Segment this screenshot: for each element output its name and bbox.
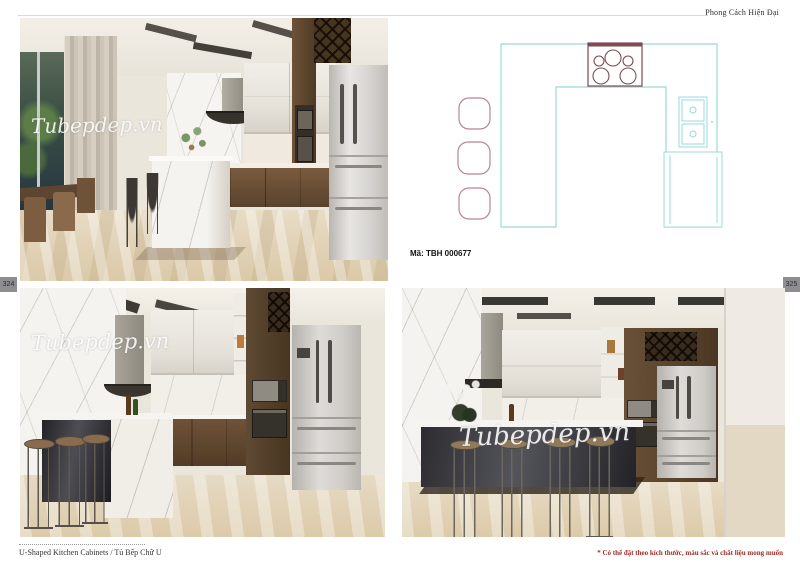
wine-rack-lattice xyxy=(268,292,290,332)
plan-oven-stack xyxy=(679,97,713,147)
bar-stool xyxy=(123,178,141,246)
fridge-drawer-handle xyxy=(297,462,355,465)
catalog-page: Phong Cách Hiện Đại xyxy=(0,0,800,565)
flower-arrangement xyxy=(175,123,212,160)
fridge-seam xyxy=(329,155,388,157)
kitchen-photo-bottom-left: Tubepdep.vn xyxy=(20,288,385,537)
marble-island xyxy=(152,161,229,248)
footer-caption: U-Shaped Kitchen Cabinets / Tủ Bếp Chữ U xyxy=(19,548,162,557)
plan-refrigerator xyxy=(664,152,722,227)
upper-cabinets xyxy=(244,63,336,134)
fridge-drawer-handle xyxy=(662,462,710,465)
upper-cabinets xyxy=(502,330,602,397)
footer-rule xyxy=(19,544,145,545)
orchid-arrangement xyxy=(433,375,494,422)
ceiling-light-strip xyxy=(517,313,571,319)
wine-bottle xyxy=(509,404,514,421)
page-number-left: 324 xyxy=(0,277,17,292)
backsplash xyxy=(151,375,253,417)
built-in-oven xyxy=(297,136,313,162)
bar-stool xyxy=(143,173,161,233)
refrigerator xyxy=(329,65,388,260)
kitchen-photo-top-left: Tubepdep.vn xyxy=(20,18,388,281)
watermark-text: Tubepdep.vn xyxy=(459,417,631,453)
fridge-handle xyxy=(687,376,690,418)
microwave xyxy=(627,400,658,418)
plan-cooktop xyxy=(588,43,642,86)
dining-chair xyxy=(77,178,95,212)
fridge-seam xyxy=(329,197,388,199)
page-number-right: 325 xyxy=(783,277,800,292)
ceiling-light-strip xyxy=(479,297,548,305)
bar-stool-legs xyxy=(586,444,613,537)
bar-stool-legs xyxy=(55,445,84,527)
range-hood-chimney xyxy=(481,313,504,380)
header-rule xyxy=(18,15,708,16)
fridge-handle xyxy=(340,84,344,144)
hallway-opening xyxy=(724,288,785,537)
fridge-drawer-handle xyxy=(335,207,383,210)
built-in-oven xyxy=(252,409,287,438)
island-marble-side xyxy=(104,419,173,519)
footer-note: * Có thể đặt theo kích thước, màu sắc và… xyxy=(597,549,783,557)
range-hood-chimney xyxy=(222,78,242,112)
floor-plan xyxy=(430,25,760,255)
product-code: Mã: TBH 000677 xyxy=(410,249,471,258)
fridge-seam xyxy=(657,455,716,457)
fridge-handle xyxy=(328,340,332,402)
wine-bottle xyxy=(126,395,131,415)
fridge-drawer-handle xyxy=(662,437,710,440)
fridge-drawer-handle xyxy=(335,165,383,168)
kitchen-photo-bottom-right: Tubepdep.vn xyxy=(402,288,785,537)
fridge-handle xyxy=(316,340,320,402)
shelf-item xyxy=(237,335,244,347)
watermark-text: Tubepdep.vn xyxy=(31,329,170,355)
bar-stool-seat xyxy=(82,434,110,445)
fridge-seam xyxy=(292,417,361,419)
microwave xyxy=(252,380,287,402)
shelf-item xyxy=(607,340,615,352)
bar-stool-legs xyxy=(450,447,479,537)
fridge-control-panel xyxy=(297,348,310,358)
fridge-seam xyxy=(657,430,716,432)
fridge-drawer-handle xyxy=(297,427,355,430)
fridge-seam xyxy=(292,452,361,454)
ceiling-light-strip xyxy=(594,297,655,305)
plan-stool-3 xyxy=(459,188,490,219)
plan-stool-2 xyxy=(458,142,490,174)
floor-shadow xyxy=(136,247,247,260)
fridge-control-panel xyxy=(662,380,673,389)
bar-stool-legs xyxy=(498,446,527,537)
fridge-handle xyxy=(676,376,679,418)
wine-bottle xyxy=(133,399,138,415)
plan-stool-1 xyxy=(459,98,490,129)
built-in-oven xyxy=(297,110,313,130)
watermark-text: Tubepdep.vn xyxy=(31,112,163,138)
page-header-title: Phong Cách Hiện Đại xyxy=(705,8,779,17)
dining-chair xyxy=(24,197,46,242)
bar-stool-legs xyxy=(546,445,575,537)
bar-stool-legs xyxy=(24,447,53,529)
bar-stool-legs xyxy=(82,442,108,524)
fridge-handle xyxy=(353,84,357,144)
wine-rack-lattice xyxy=(314,18,351,63)
wine-rack-lattice xyxy=(645,332,697,362)
dining-chair xyxy=(53,192,75,231)
